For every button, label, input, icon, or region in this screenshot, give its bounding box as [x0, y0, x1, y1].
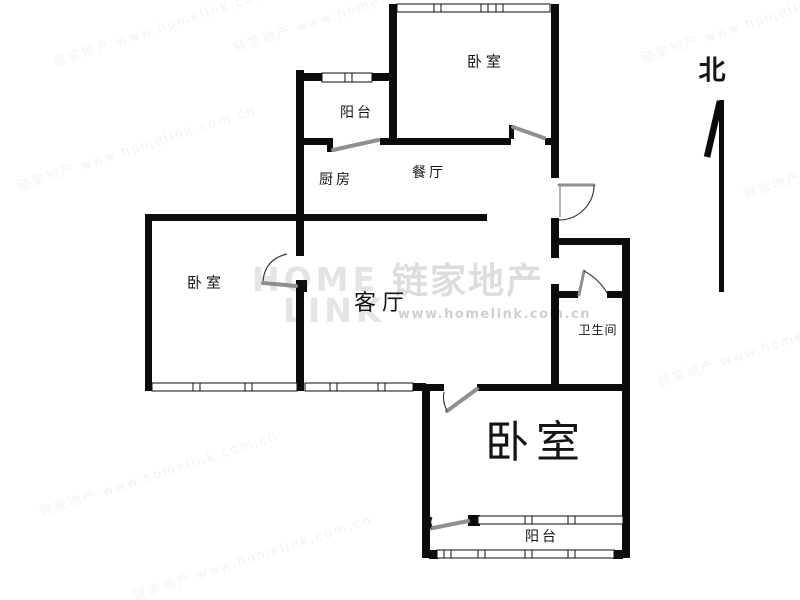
- door-bathroom: [579, 271, 607, 295]
- north-arrow-icon: [707, 100, 722, 292]
- door-balcony-bottom: [429, 517, 468, 529]
- room-label-bathroom: 卫生间: [578, 324, 617, 336]
- window-balcony-top: [322, 73, 372, 82]
- room-label-dining: 餐厅: [412, 166, 446, 180]
- door-bedroom-bottom: [443, 389, 477, 411]
- door-entry: [559, 184, 594, 220]
- door-balcony-top: [327, 138, 378, 152]
- room-label-balcony-top: 阳台: [340, 106, 374, 120]
- room-label-bedroom-top: 卧室: [467, 55, 505, 70]
- door-bedroom-left: [263, 254, 296, 286]
- window-balcony-bottom: [437, 550, 614, 558]
- room-label-living: 客厅: [354, 293, 410, 315]
- window-bedroom-balcony-divider: [478, 516, 623, 524]
- window-bedroom-left: [152, 383, 297, 391]
- room-label-balcony-bottom: 阳台: [525, 530, 559, 544]
- north-label: 北: [699, 58, 726, 85]
- window-bedroom-top: [397, 4, 550, 12]
- window-living: [305, 383, 413, 391]
- door-bedroom-top: [509, 125, 544, 139]
- room-label-kitchen: 厨房: [319, 173, 353, 187]
- room-label-bedroom-bottom: 卧室: [485, 421, 587, 465]
- floor-plan: 链家地产 www.homelink.com.cn 链家地产 www.homeli…: [0, 0, 800, 600]
- room-label-bedroom-left: 卧室: [187, 276, 225, 291]
